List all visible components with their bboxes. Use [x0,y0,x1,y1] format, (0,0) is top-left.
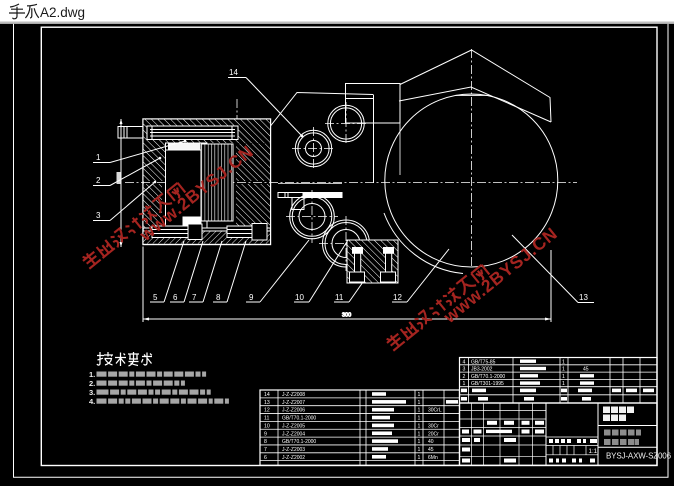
svg-text:J-Z-Z2006: J-Z-Z2006 [282,408,305,414]
svg-text:1: 1 [562,381,565,387]
svg-text:14: 14 [229,68,238,77]
svg-text:1: 1 [418,447,421,453]
svg-text:J-Z-Z2002: J-Z-Z2002 [282,455,305,461]
svg-text:1: 1 [418,416,421,422]
svg-text:2: 2 [463,374,466,380]
svg-text:4.: 4. [89,397,95,406]
svg-text:9: 9 [249,293,254,302]
svg-text:BYSJ-AXW-SZ006: BYSJ-AXW-SZ006 [606,452,672,461]
svg-text:4: 4 [463,359,466,365]
svg-text:1.: 1. [89,370,95,379]
svg-text:1: 1 [463,381,466,387]
svg-text:13: 13 [264,400,270,406]
svg-text:13: 13 [579,293,588,302]
svg-text:GB/T301-1995: GB/T301-1995 [471,381,504,387]
svg-text:12: 12 [264,408,270,414]
svg-text:6Mn: 6Mn [428,455,438,461]
svg-text:1: 1 [418,408,421,414]
svg-text:2: 2 [96,176,101,185]
svg-text:J-Z-Z2004: J-Z-Z2004 [282,431,305,437]
svg-text:GB/T70.1-2000: GB/T70.1-2000 [471,374,505,380]
svg-text:1: 1 [418,455,421,461]
svg-text:6: 6 [264,455,267,461]
svg-text:10: 10 [264,423,270,429]
svg-text:5: 5 [153,293,158,302]
svg-text:9: 9 [264,431,267,437]
svg-text:7: 7 [192,293,197,302]
svg-text:GB/T70.1-2000: GB/T70.1-2000 [282,439,316,445]
svg-text:20Cr: 20Cr [428,431,439,437]
svg-text:1: 1 [562,367,565,373]
svg-text:GB/T70.1-2000: GB/T70.1-2000 [282,416,316,422]
svg-text:14: 14 [264,392,270,398]
svg-text:1: 1 [562,359,565,365]
svg-text:30Cr: 30Cr [428,423,439,429]
svg-text:3.: 3. [89,388,95,397]
svg-text:1: 1 [418,400,421,406]
svg-text:45: 45 [583,367,589,373]
svg-text:8: 8 [216,293,221,302]
svg-text:1: 1 [418,423,421,429]
svg-text:10: 10 [295,293,304,302]
svg-text:1:1: 1:1 [589,448,598,455]
svg-text:45: 45 [428,447,434,453]
svg-text:J-Z-Z2008: J-Z-Z2008 [282,392,305,398]
svg-text:J-Z-Z2007: J-Z-Z2007 [282,400,305,406]
svg-text:1: 1 [418,392,421,398]
svg-text:6: 6 [173,293,178,302]
svg-text:J-Z-Z2003: J-Z-Z2003 [282,447,305,453]
svg-text:1: 1 [96,153,101,162]
svg-text:2.: 2. [89,379,95,388]
svg-text:1: 1 [562,374,565,380]
svg-text:A2.dwg: A2.dwg [40,5,85,20]
svg-text:1: 1 [418,431,421,437]
svg-text:1: 1 [418,439,421,445]
svg-text:3: 3 [96,211,101,220]
svg-text:300: 300 [342,313,351,319]
svg-text:7: 7 [264,447,267,453]
svg-text:J-Z-Z2005: J-Z-Z2005 [282,423,305,429]
svg-text:12: 12 [393,293,402,302]
svg-text:JB3-2002: JB3-2002 [471,367,493,373]
svg-text:GB/T75-85: GB/T75-85 [471,359,496,365]
svg-text:11: 11 [335,293,344,302]
svg-text:11: 11 [264,416,269,422]
svg-text:8: 8 [264,439,267,445]
svg-text:3: 3 [463,367,466,373]
svg-text:40: 40 [428,439,434,445]
svg-text:30CrL: 30CrL [428,408,442,414]
